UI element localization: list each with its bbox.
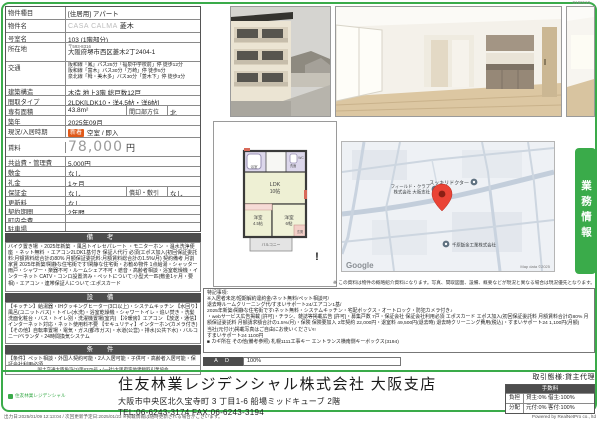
- fee-table-row: 分配 元付:0% 客付:100%: [506, 403, 594, 413]
- tab-business-info[interactable]: 業務情報: [575, 148, 596, 274]
- deal-block: 取引態様:貸主代理 手数料 負担 貸主:0% 借主:100% 分配 元付:0% …: [505, 372, 595, 414]
- row-value: 2025年09月: [66, 116, 200, 125]
- ad-value: 100%: [243, 357, 401, 366]
- table-row: 号室名 103 (1階部分): [6, 33, 200, 43]
- location-map: スッキリドクター フィールド・クラブ 株式会社 大阪支社 千原鈑金工業株式会社 …: [341, 141, 555, 272]
- property-name-kanji: 菱木: [120, 23, 134, 30]
- row-value: [66, 215, 200, 222]
- guarantee-value: なし: [66, 187, 126, 196]
- table-row: 更新料 なし: [6, 197, 200, 206]
- remarks-text: バイク置き場 ・2025年新築 ・風呂トイレセパレート ・モニターホン ・温水洗…: [5, 242, 201, 292]
- access-line: 泉北線「栂・美木多」バス30分「菱木下」停 徒歩3分: [68, 75, 198, 81]
- facing-label: 間口部方位: [126, 106, 168, 115]
- table-row-rent: 賃料 78,000円: [6, 138, 200, 157]
- property-flyer: 0190110 物件種目 [住居用] アパート 物件名 CASA CALMA菱木…: [0, 0, 600, 423]
- amortization-label: 償却・敷引: [126, 187, 168, 196]
- rent-cell: 78,000円: [66, 138, 200, 156]
- property-table: 物件種目 [住居用] アパート 物件名 CASA CALMA菱木 号室名 103…: [5, 6, 201, 232]
- ad-label: A D: [203, 357, 243, 366]
- svg-text:洋室: 洋室: [254, 214, 263, 221]
- table-row: 建築構造 木造 地上3階 総戸数12戸: [6, 86, 200, 96]
- fee-table: 手数料 負担 貸主:0% 借主:100% 分配 元付:0% 客付:100%: [505, 384, 595, 414]
- fee-row-value: 元付:0% 客付:100%: [524, 404, 594, 413]
- footer-powered-by: Powered by RealNetPro co., ltd: [532, 414, 596, 419]
- living-room-photo: [335, 6, 562, 117]
- row-value: なし: [66, 167, 200, 176]
- map-art: スッキリドクター フィールド・クラブ 株式会社 大阪支社 千原鈑金工業株式会社 …: [342, 142, 554, 271]
- row-label: 専有面積: [6, 106, 66, 115]
- row-value: なし: [66, 197, 200, 205]
- map-copyright: Map data ©2025: [520, 264, 550, 269]
- map-disclaimer: ※ この資料は物件の概略紹介資料になります。写真、間取図面、設備、概要などが現況…: [333, 280, 595, 286]
- deal-type: 取引態様:貸主代理: [505, 372, 595, 382]
- ad-row: A D 100%: [203, 357, 401, 366]
- address-cell: 〒593-8316 大阪府堺市西区菱木2丁2404-1: [66, 43, 200, 61]
- table-row: 物件種目 [住居用] アパート: [6, 7, 200, 20]
- rent-amount: 78,000: [68, 139, 123, 155]
- row-label: 敷金: [6, 167, 66, 176]
- row-label: 物件種目: [6, 7, 66, 19]
- svg-text:4.5帖: 4.5帖: [253, 220, 263, 227]
- remarks-header: 備 考: [5, 233, 201, 242]
- svg-text:洗面: 洗面: [290, 163, 297, 168]
- row-value: 2LDK[LDK10・洋4.5帖・洋6帖]: [66, 96, 200, 105]
- row-label: 賃料: [6, 142, 66, 153]
- svg-text:WC: WC: [298, 156, 304, 160]
- table-row: 礼金 1ヶ月: [6, 177, 200, 187]
- row-value: 103 (1階部分): [66, 33, 200, 42]
- table-row: 保証金 なし 償却・敷引 なし: [6, 187, 200, 197]
- row-label: 築年: [6, 116, 66, 125]
- company-logo: 住友林業レジデンシャル: [8, 393, 66, 399]
- svg-text:スッキリドクター: スッキリドクター: [429, 180, 469, 187]
- row-value: [住居用] アパート: [66, 7, 200, 19]
- svg-text:浴室: 浴室: [251, 164, 259, 169]
- building-exterior-photo: [230, 6, 331, 117]
- svg-text:千原鈑金工業株式会社: 千原鈑金工業株式会社: [452, 242, 497, 249]
- company-logo-icon: [8, 394, 13, 399]
- property-name: CASA CALMA菱木: [66, 20, 200, 32]
- conditions-header: 条 件: [5, 345, 201, 354]
- table-row: 交通 阪和線「鳳」バス25分「福泉中学校前」停 徒歩12分 阪和線「富木」バス3…: [6, 62, 200, 86]
- table-row: 敷金 なし: [6, 167, 200, 177]
- svg-text:LDK: LDK: [270, 182, 281, 188]
- table-row: 町内会費: [6, 215, 200, 223]
- table-row: 駐車場: [6, 223, 200, 231]
- table-row: 現況/入居時期 新着空室 / 即入: [6, 126, 200, 138]
- fee-row-value: 貸主:0% 借主:100%: [524, 394, 594, 403]
- floor-plan-drawing: 浴室 洗面 WC LDK 10帖 洋室 4.5帖 洋室 6帖 バルコニー 玄関 …: [214, 122, 336, 286]
- table-row: 共益費・管理費 5,000円: [6, 157, 200, 167]
- status-cell: 新着空室 / 即入: [66, 126, 200, 137]
- table-row: 物件名 CASA CALMA菱木: [6, 20, 200, 33]
- document-id: 0190110: [572, 0, 590, 5]
- company-address: 大阪市中央区北久宝寺町 3 丁目1-6 船場ミッドキューブ 2階: [118, 396, 437, 407]
- row-label: 共益費・管理費: [6, 157, 66, 166]
- fee-row-label: 負担: [506, 394, 524, 403]
- facilities-text: 【キッチン】給湯器・IHクッキングヒーター(3口以上)・システムキッチン 【水回…: [5, 302, 201, 344]
- company-name: 住友林業レジデンシャル株式会社 大阪支店: [118, 373, 437, 394]
- table-row: 契約期間 2年間: [6, 206, 200, 215]
- row-value: 2年間: [66, 206, 200, 214]
- row-label: 礼金: [6, 177, 66, 186]
- property-name-roman: CASA CALMA: [68, 23, 118, 30]
- company-block: 住友林業レジデンシャル株式会社 大阪支店 大阪市中央区北久宝寺町 3 丁目1-6…: [118, 373, 437, 417]
- special-notes-line: ・webサービス広告掲載 [許可]・チラシ、雑誌等掲載広告 [許可]・募集戸数 …: [207, 315, 591, 327]
- property-detail-column: 物件種目 [住居用] アパート 物件名 CASA CALMA菱木 号室名 103…: [5, 6, 201, 375]
- row-label: 町内会費: [6, 215, 66, 222]
- footer-print-info: 出力日:2025/01/09 12:13:04 / 次回更新予定日:2025/0…: [4, 414, 223, 420]
- rent-unit: 円: [126, 143, 135, 153]
- row-label: 保証金: [6, 187, 66, 196]
- row-value: 1ヶ月: [66, 177, 200, 186]
- row-value: 5,000円: [66, 157, 200, 166]
- room-photo-cropped: [566, 6, 595, 117]
- conditions-text: 【条件】ペット相談・外国人契約可能・2人入居可能・子供可・高齢者入居可能・保証会…: [5, 354, 201, 366]
- area-value: 43.8m²: [66, 106, 126, 115]
- amortization-value: なし: [168, 187, 200, 196]
- row-label: 間取タイプ: [6, 96, 66, 105]
- svg-text:6帖: 6帖: [285, 220, 293, 227]
- fee-row-label: 分配: [506, 404, 524, 413]
- facing-value: 北: [168, 106, 200, 115]
- alert-icon: !: [315, 251, 319, 263]
- facilities-header: 設 備: [5, 293, 201, 302]
- status-value: 空室 / 即入: [87, 130, 118, 137]
- row-label: 交通: [6, 62, 66, 85]
- svg-text:10帖: 10帖: [270, 188, 281, 195]
- special-notes-line: ■ カギ所在 その他(備考参照) 札幌1111工事キー エントランス横南側キーボ…: [207, 340, 591, 346]
- fee-table-header: 手数料: [506, 385, 594, 393]
- google-logo: Google: [346, 261, 374, 270]
- access-cell: 阪和線「鳳」バス25分「福泉中学校前」停 徒歩12分 阪和線「富木」バス30分「…: [66, 62, 200, 85]
- table-row: 築年 2025年09月: [6, 116, 200, 126]
- table-row: 所在地 〒593-8316 大阪府堺市西区菱木2丁2404-1: [6, 43, 200, 62]
- table-row: 間取タイプ 2LDK[LDK10・洋4.5帖・洋6帖]: [6, 96, 200, 106]
- row-value: 木造 地上3階 総戸数12戸: [66, 86, 200, 95]
- row-label: 現況/入居時期: [6, 126, 66, 137]
- svg-text:洋室: 洋室: [284, 214, 294, 221]
- svg-text:株式会社 大阪支社: 株式会社 大阪支社: [394, 189, 431, 196]
- company-logo-text: 住友林業レジデンシャル: [15, 393, 66, 399]
- building-photo-art: [231, 7, 330, 116]
- ldk-photo-art: [336, 7, 561, 116]
- row-label: 物件名: [6, 20, 66, 32]
- svg-text:玄関: 玄関: [297, 229, 303, 234]
- svg-text:バルコニー: バルコニー: [262, 242, 281, 247]
- table-row: 専有面積 43.8m² 間口部方位 北: [6, 106, 200, 116]
- row-label: 所在地: [6, 43, 66, 61]
- new-badge: 新着: [68, 129, 84, 137]
- row-label: 契約期間: [6, 206, 66, 214]
- row-label: 駐車場: [6, 223, 66, 231]
- row-label: 建築構造: [6, 86, 66, 95]
- row-value: [66, 223, 200, 231]
- row-label: 号室名: [6, 33, 66, 42]
- fee-table-row: 負担 貸主:0% 借主:100%: [506, 393, 594, 403]
- address-text: 大阪府堺市西区菱木2丁2404-1: [68, 49, 198, 56]
- special-notes-box: 特記事項: ※入居者未定/短期解約違約金/ネット無料/ペット相談可/ 退去時ルー…: [203, 288, 595, 353]
- row-label: 更新料: [6, 197, 66, 205]
- room-photo-art: [567, 7, 594, 116]
- floor-plan: 浴室 洗面 WC LDK 10帖 洋室 4.5帖 洋室 6帖 バルコニー 玄関 …: [213, 121, 337, 287]
